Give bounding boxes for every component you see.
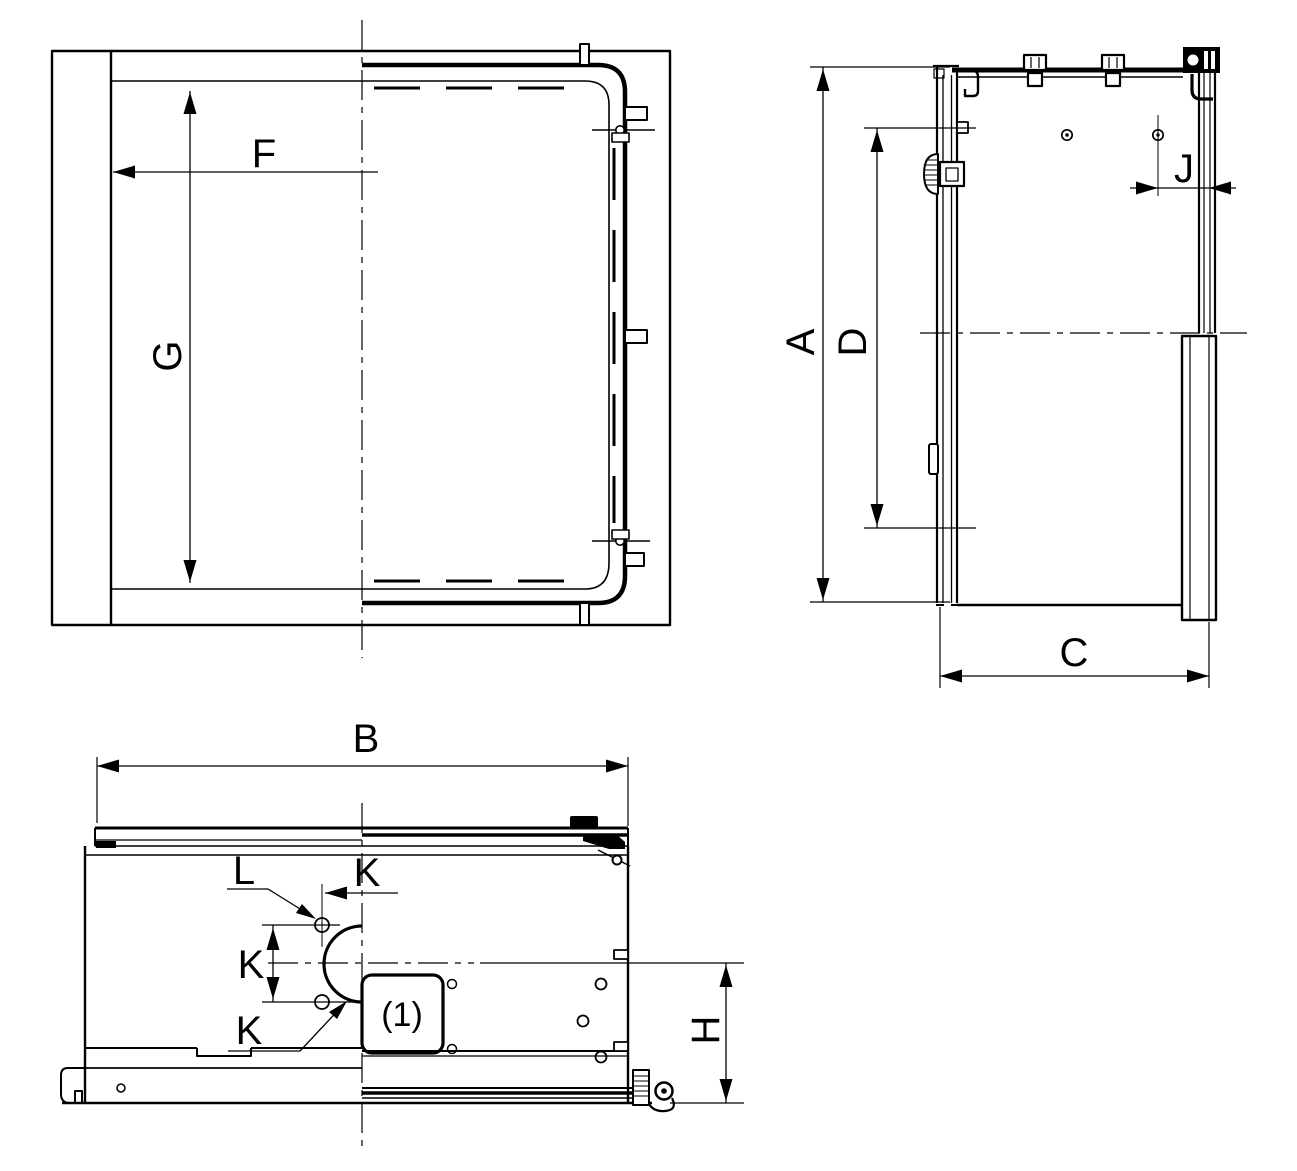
door-edge <box>933 66 978 605</box>
dim-f-arrow <box>113 166 135 179</box>
dim-c: C <box>940 607 1209 688</box>
mounting-clip-left <box>1024 55 1046 86</box>
dim-k-middle: K <box>238 925 280 1002</box>
semicircle-cutout <box>324 926 362 1002</box>
dim-k-middle-label: K <box>238 943 265 987</box>
hinge-top <box>592 126 655 142</box>
dim-k-top: K <box>325 851 398 900</box>
edge-tab-lower <box>614 1042 628 1051</box>
hinge-pin-middle <box>625 330 647 343</box>
dim-l: L <box>227 849 316 919</box>
dim-j: J <box>1130 147 1236 195</box>
door-hinge-tab <box>929 444 938 474</box>
dim-j-label: J <box>1174 147 1194 191</box>
rear-panel-upper <box>1199 73 1215 333</box>
rear-wall-hole-right <box>1153 115 1163 196</box>
bottom-view: (1) B L <box>61 717 744 1148</box>
hinge-pin-top <box>625 107 647 120</box>
mounting-hole <box>596 979 607 990</box>
dim-g-label: G <box>146 340 190 371</box>
dim-k-bottom: K <box>228 1001 347 1053</box>
technical-drawing: F G <box>0 0 1297 1166</box>
gland-plate-cutout: (1) <box>362 975 457 1054</box>
dim-a-label: A <box>779 328 823 355</box>
flange-section <box>362 65 625 603</box>
dim-g: G <box>146 91 197 583</box>
dim-b-label: B <box>353 717 380 761</box>
dim-d: D <box>831 128 976 528</box>
callout-1-label: (1) <box>381 996 423 1034</box>
inner-opening <box>111 81 609 589</box>
dim-h-label: H <box>684 1016 728 1045</box>
mounting-clip-right <box>1102 55 1124 86</box>
dim-k-bottom-label: K <box>236 1009 263 1053</box>
dim-k-top-label: K <box>354 851 381 895</box>
bottom-pin <box>580 603 589 625</box>
rail-hole <box>117 1084 125 1092</box>
edge-tab-upper <box>614 950 628 959</box>
hinge-bottom <box>592 530 650 545</box>
side-view: A D J C <box>779 47 1247 688</box>
top-pin <box>580 44 589 65</box>
dim-d-label: D <box>831 328 875 357</box>
hinge-pin-bottom <box>625 553 644 566</box>
lid-latch <box>570 816 630 866</box>
wall-hook-left <box>61 1068 85 1103</box>
mounting-hole <box>578 1016 589 1027</box>
dim-f: F <box>113 132 378 179</box>
dim-f-label: F <box>252 132 276 176</box>
wall-hook-right <box>633 1070 674 1111</box>
door-top-hook <box>959 70 978 96</box>
outer-frame <box>52 51 670 625</box>
rear-panel-lower <box>1182 336 1216 620</box>
bottom-rail <box>61 1068 652 1103</box>
drawing-sheet: F G <box>0 0 1297 1166</box>
top-view: F G <box>52 20 670 658</box>
rear-wall-hole-left <box>1062 130 1072 140</box>
mounting-hole <box>596 1052 607 1063</box>
dim-c-label: C <box>1060 631 1089 675</box>
dim-h: H <box>670 963 744 1103</box>
dim-l-label: L <box>233 849 255 893</box>
